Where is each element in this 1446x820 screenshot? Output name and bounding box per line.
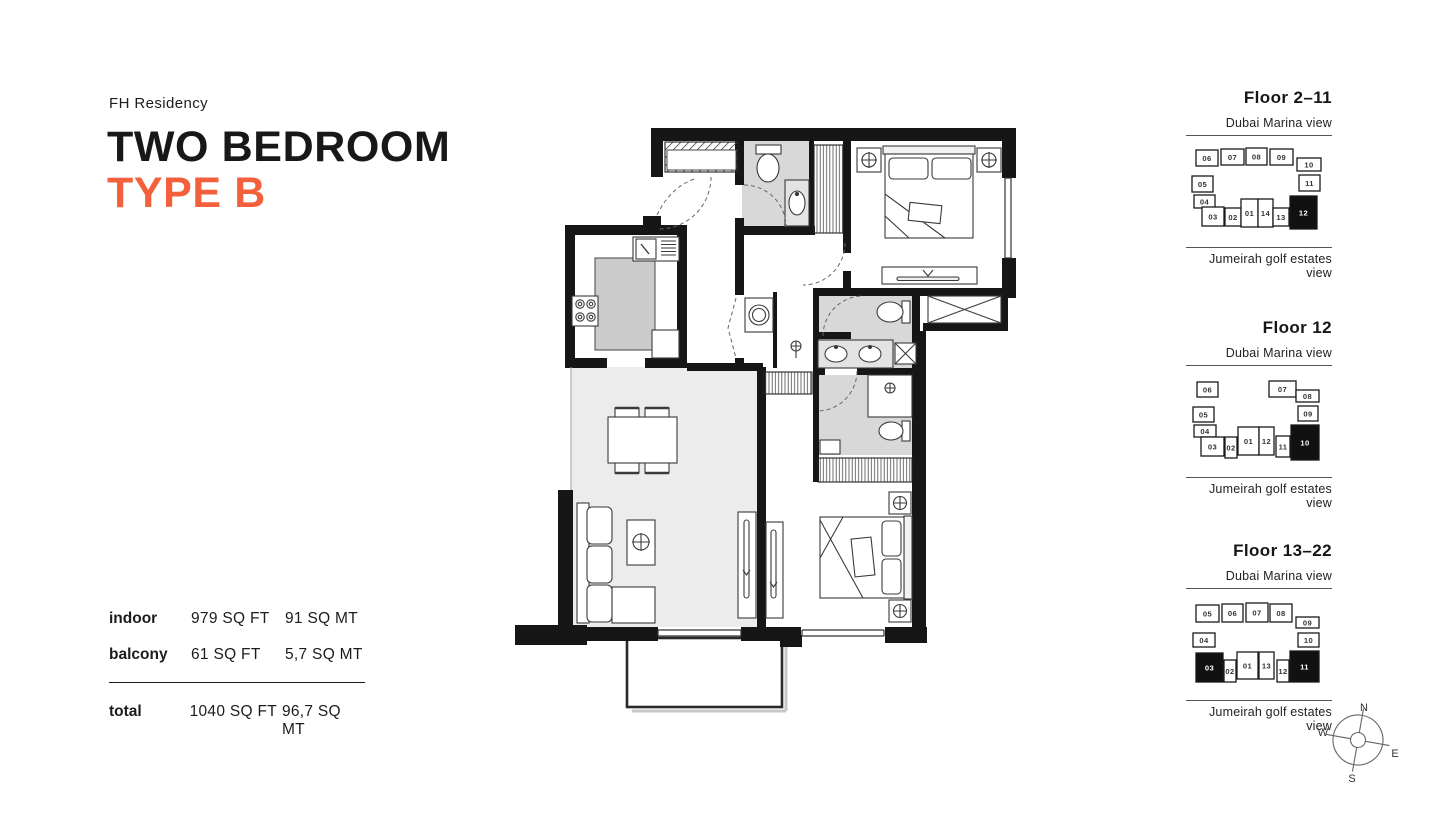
unit-label: 02 [1226, 443, 1235, 452]
unit-label: 12 [1278, 667, 1287, 676]
page-title-line2: TYPE B [107, 170, 450, 216]
stats-divider [109, 682, 365, 683]
unit-label: 08 [1252, 152, 1261, 161]
unit-label: 03 [1208, 442, 1217, 451]
shower [868, 375, 912, 417]
stat-sqft: 979 SQ FT [191, 610, 285, 628]
divider-line [1186, 477, 1332, 478]
balcony [627, 638, 786, 711]
unit-label: 13 [1276, 213, 1285, 222]
dresser [882, 267, 977, 284]
unit-label: 01 [1244, 437, 1254, 446]
floor-diagram: 0607080910051104030201141312 [1186, 139, 1332, 245]
shaft-x-box [928, 296, 1001, 323]
lamp-icon [893, 604, 907, 618]
stat-row-total: total 1040 SQ FT 96,7 SQ MT [109, 703, 367, 739]
bed-throw [851, 537, 875, 577]
unit-label: 07 [1278, 385, 1287, 394]
bed-headboard [904, 516, 912, 599]
unit-label: 07 [1252, 608, 1261, 617]
floor-drain-icon [791, 341, 801, 358]
divider-line [1186, 588, 1332, 589]
stat-label: indoor [109, 610, 191, 628]
compass-n: N [1360, 702, 1368, 714]
unit-label: 10 [1304, 160, 1313, 169]
unit-label: 09 [1303, 618, 1312, 627]
unit-label: 10 [1300, 438, 1309, 447]
toilet-tank [756, 145, 781, 154]
floor-block-2-11: Floor 2–11 Dubai Marina view 06070809100… [1186, 88, 1332, 280]
stat-sqmt: 5,7 SQ MT [285, 646, 363, 664]
unit-label: 01 [1243, 661, 1253, 670]
view-label-top: Dubai Marina view [1186, 346, 1332, 360]
stat-label: balcony [109, 646, 191, 664]
unit-label: 06 [1228, 609, 1237, 618]
kitchen-island [595, 258, 655, 350]
compass-w: W [1318, 727, 1329, 739]
divider-line [1186, 247, 1332, 248]
unit-label: 09 [1303, 409, 1312, 418]
view-label-top: Dubai Marina view [1186, 569, 1332, 583]
divider-line [1186, 135, 1332, 136]
page-title-line1: TWO BEDROOM [107, 124, 450, 170]
compass-icon: N E S W [1316, 698, 1402, 786]
toilet-bowl [879, 422, 903, 440]
toilet-bowl [877, 302, 903, 322]
unit-label: 12 [1299, 208, 1308, 217]
unit-label: 02 [1228, 213, 1237, 222]
compass-s: S [1348, 773, 1355, 785]
pillow [882, 559, 901, 594]
unit-label: 12 [1262, 437, 1271, 446]
kitchen-cabinet [652, 330, 679, 358]
lamp-icon [893, 496, 907, 510]
compass: N E S W [1316, 698, 1402, 786]
kitchen [572, 237, 679, 358]
unit-label: 08 [1276, 609, 1285, 618]
floor-block-12: Floor 12 Dubai Marina view 0607080509040… [1186, 318, 1332, 510]
unit-label: 09 [1277, 153, 1286, 162]
bath-cabinet [820, 440, 840, 454]
unit-label: 10 [1304, 636, 1313, 645]
dining-table [608, 408, 677, 473]
floor-block-13-22: Floor 13–22 Dubai Marina view 0506070809… [1186, 541, 1332, 733]
floorplan [505, 118, 1030, 718]
unit-label: 04 [1200, 427, 1210, 436]
divider-line [1186, 700, 1332, 701]
floor-diagram: 05060708090410030201131211 [1186, 592, 1332, 698]
stat-sqft: 1040 SQ FT [190, 703, 282, 739]
stat-sqmt: 96,7 SQ MT [282, 703, 367, 739]
unit-label: 11 [1279, 442, 1288, 451]
bedroom2-wardrobe [818, 458, 912, 482]
pillow [882, 521, 901, 556]
stat-sqmt: 91 SQ MT [285, 610, 358, 628]
unit-label: 01 [1245, 209, 1255, 218]
shaft-x-box-small [895, 343, 916, 364]
unit-label: 14 [1261, 209, 1271, 218]
unit-label: 05 [1198, 180, 1208, 189]
view-label-top: Dubai Marina view [1186, 116, 1332, 130]
unit-label: 08 [1303, 392, 1312, 401]
coffee-table [627, 520, 655, 565]
entry-closet [665, 142, 738, 172]
unit-label: 11 [1305, 179, 1314, 188]
brand-text: FH Residency [109, 95, 208, 112]
unit-label: 07 [1228, 153, 1237, 162]
area-stats: indoor 979 SQ FT 91 SQ MT balcony 61 SQ … [109, 610, 367, 730]
view-label-bottom: Jumeirah golf estates view [1186, 482, 1332, 510]
master-bedroom [857, 146, 1001, 284]
view-label-bottom: Jumeirah golf estates view [1186, 705, 1332, 733]
view-label-bottom: Jumeirah golf estates view [1186, 252, 1332, 280]
compass-e: E [1391, 748, 1398, 760]
unit-label: 04 [1199, 636, 1209, 645]
floor-title: Floor 2–11 [1186, 88, 1332, 108]
unit-label: 05 [1199, 410, 1209, 419]
floor-diagram: 060708050904030201121110 [1186, 369, 1332, 475]
floorplan-svg [505, 118, 1030, 718]
bed-throw [908, 202, 942, 223]
unit-label: 06 [1203, 385, 1212, 394]
stat-row-balcony: balcony 61 SQ FT 5,7 SQ MT [109, 646, 367, 664]
floor-title: Floor 13–22 [1186, 541, 1332, 561]
unit-label: 06 [1202, 154, 1211, 163]
unit-label: 13 [1262, 661, 1271, 670]
unit-label: 04 [1200, 197, 1210, 206]
second-bedroom [820, 492, 912, 622]
bed-headboard [883, 146, 975, 154]
toilet-bowl [757, 154, 779, 182]
kitchen-sink-bowl [636, 239, 656, 259]
unit-label: 03 [1205, 663, 1214, 672]
stat-label: total [109, 703, 190, 739]
floor-title: Floor 12 [1186, 318, 1332, 338]
unit-label: 05 [1203, 609, 1213, 618]
master-wardrobe [814, 145, 843, 233]
stat-row-indoor: indoor 979 SQ FT 91 SQ MT [109, 610, 367, 628]
pillow [889, 158, 928, 179]
hall-wardrobe [763, 372, 812, 394]
unit-label: 03 [1208, 212, 1217, 221]
pillow [932, 158, 971, 179]
unit-label: 02 [1225, 667, 1234, 676]
stat-sqft: 61 SQ FT [191, 646, 285, 664]
unit-label: 11 [1300, 662, 1309, 671]
page-title: TWO BEDROOM TYPE B [107, 124, 450, 216]
divider-line [1186, 365, 1332, 366]
